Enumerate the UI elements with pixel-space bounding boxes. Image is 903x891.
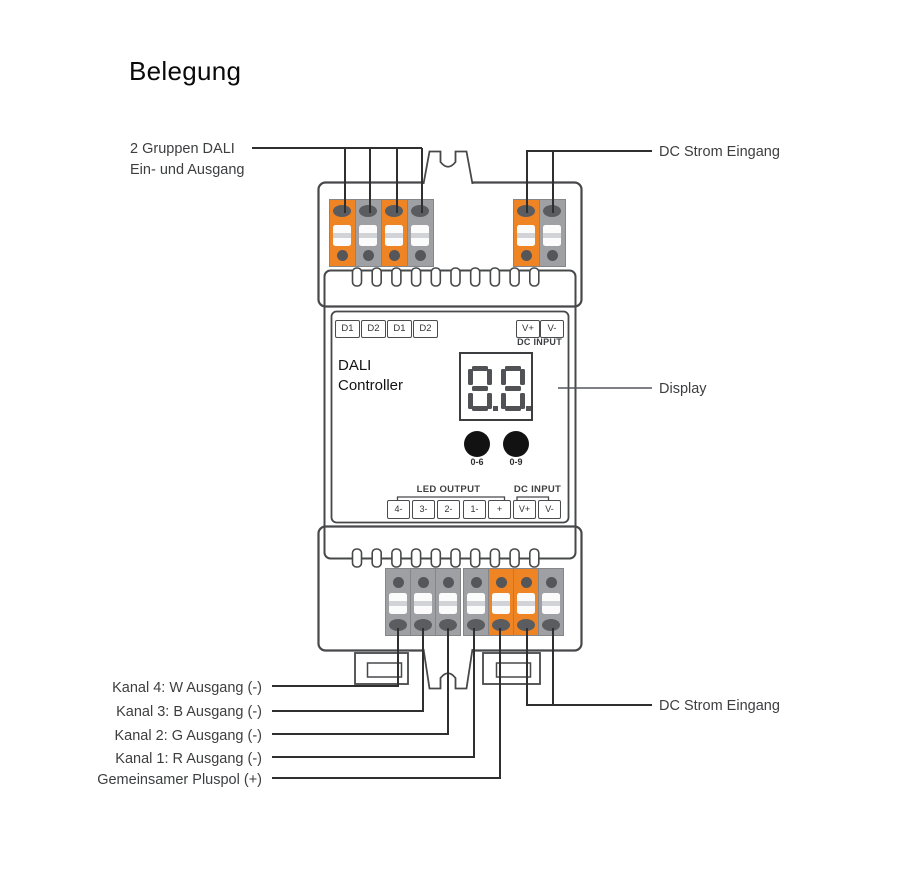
terminal-top-dc-minus [539, 199, 566, 267]
decimal-point-2 [526, 406, 531, 411]
terminal-bottom-ch3 [410, 568, 436, 636]
vent-slots-top [353, 268, 539, 286]
callout-channel-2: Kanal 2: G Ausgang (-) [40, 726, 262, 747]
wire-hole-icon [517, 205, 535, 217]
wire-hole-icon [385, 205, 403, 217]
port-label-1minus: 1- [463, 500, 486, 519]
screw-icon [547, 250, 558, 261]
screw-icon [393, 577, 404, 588]
wire-hole-icon [517, 619, 535, 631]
terminal-bottom-plus [488, 568, 514, 636]
wire-hole-icon [492, 619, 510, 631]
release-slot [517, 225, 535, 246]
mounting-foot-left-slot [368, 663, 402, 677]
dc-input-caption-bottom: DC INPUT [509, 484, 566, 495]
release-slot [389, 593, 407, 614]
release-slot [467, 593, 485, 614]
wire-channel-4 [272, 628, 398, 686]
screw-icon [363, 250, 374, 261]
decimal-point-1 [493, 406, 498, 411]
wire-hole-icon [333, 205, 351, 217]
wire-hole-icon [359, 205, 377, 217]
port-label-vplus-top: V+ [516, 320, 540, 338]
screw-icon [521, 250, 532, 261]
release-slot [385, 225, 403, 246]
pinout-diagram: Belegung 2 Gruppen DALI Ein- und Ausgang… [0, 0, 903, 891]
port-label-d1-a: D1 [335, 320, 360, 338]
release-slot [359, 225, 377, 246]
wire-hole-icon [542, 619, 560, 631]
screw-icon [337, 250, 348, 261]
port-label-vminus-bottom: V- [538, 500, 561, 519]
push-button-0-6 [464, 431, 490, 457]
wire-hole-icon [414, 619, 432, 631]
callout-common-plus: Gemeinsamer Pluspol (+) [40, 770, 262, 791]
release-slot [439, 593, 457, 614]
button-label-0-6: 0-6 [464, 457, 490, 467]
wire-channel-1 [272, 628, 474, 757]
release-slot [543, 225, 561, 246]
release-slot [414, 593, 432, 614]
screw-icon [546, 577, 557, 588]
wire-hole-icon [411, 205, 429, 217]
port-label-4minus: 4- [387, 500, 410, 519]
display-digit-2 [501, 366, 525, 411]
wire-hole-icon [467, 619, 485, 631]
release-slot [517, 593, 535, 614]
port-label-vminus-top: V- [540, 320, 564, 338]
terminal-bottom-ch2 [435, 568, 461, 636]
mounting-foot-right-slot [497, 663, 531, 677]
callout-channel-3: Kanal 3: B Ausgang (-) [40, 702, 262, 723]
push-button-0-9 [503, 431, 529, 457]
wire-dc-bottom-plus [527, 628, 652, 705]
screw-icon [418, 577, 429, 588]
mounting-foot-right [483, 653, 540, 684]
wiring-lines [252, 148, 652, 778]
display-digit-1 [468, 366, 492, 411]
wire-hole-icon [439, 619, 457, 631]
port-label-vplus-bottom: V+ [513, 500, 536, 519]
release-slot [492, 593, 510, 614]
terminal-top-dc-plus [513, 199, 540, 267]
seven-segment-display [459, 352, 533, 421]
mounting-foot-left [355, 653, 408, 684]
terminal-bottom-ch4 [385, 568, 411, 636]
callout-dali-io-line2: Ein- und Ausgang [130, 160, 244, 181]
port-label-3minus: 3- [412, 500, 435, 519]
terminal-bottom-vminus [538, 568, 564, 636]
port-label-d2-b: D2 [413, 320, 438, 338]
screw-icon [496, 577, 507, 588]
led-output-caption: LED OUTPUT [390, 484, 507, 495]
vent-slots-bottom [353, 549, 539, 567]
device-name: DALI Controller [338, 356, 403, 395]
din-clip-bottom [424, 649, 473, 689]
terminal-bottom-ch1 [463, 568, 489, 636]
terminal-top-dali-4 [407, 199, 434, 267]
callout-dali-io: 2 Gruppen DALI Ein- und Ausgang [130, 139, 244, 181]
callout-channel-1: Kanal 1: R Ausgang (-) [40, 749, 262, 770]
screw-icon [521, 577, 532, 588]
screw-icon [471, 577, 482, 588]
din-clip-top [424, 152, 473, 185]
wire-channel-2 [272, 628, 448, 734]
callout-display: Display [659, 379, 707, 400]
wire-hole-icon [389, 619, 407, 631]
terminal-bottom-vplus [513, 568, 539, 636]
release-slot [542, 593, 560, 614]
dc-input-caption-top: DC INPUT [500, 337, 562, 347]
port-label-2minus: 2- [437, 500, 460, 519]
page-title: Belegung [129, 56, 241, 87]
callout-channel-4: Kanal 4: W Ausgang (-) [40, 678, 262, 699]
callout-dc-input-bottom: DC Strom Eingang [659, 696, 780, 717]
port-label-d1-b: D1 [387, 320, 412, 338]
release-slot [411, 225, 429, 246]
callout-dali-io-line1: 2 Gruppen DALI [130, 139, 244, 160]
terminal-top-dali-1 [329, 199, 356, 267]
device-name-line1: DALI [338, 356, 403, 376]
device-name-line2: Controller [338, 376, 403, 396]
terminal-top-dali-3 [381, 199, 408, 267]
button-label-0-9: 0-9 [503, 457, 529, 467]
port-label-d2-a: D2 [361, 320, 386, 338]
wire-hole-icon [543, 205, 561, 217]
terminal-top-dali-2 [355, 199, 382, 267]
wire-common-plus [272, 628, 500, 778]
port-label-plus: + [488, 500, 511, 519]
screw-icon [389, 250, 400, 261]
release-slot [333, 225, 351, 246]
screw-icon [415, 250, 426, 261]
wire-channel-3 [272, 628, 423, 711]
callout-dc-input-top: DC Strom Eingang [659, 142, 780, 163]
screw-icon [443, 577, 454, 588]
